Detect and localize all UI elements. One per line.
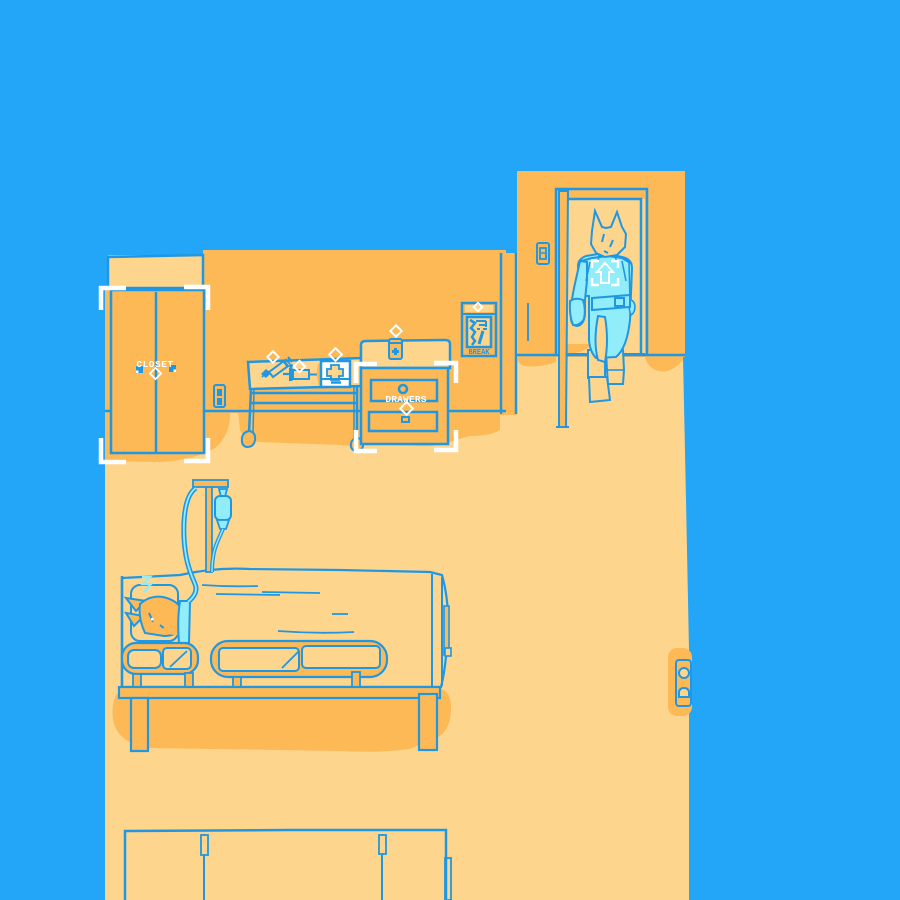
svg-text:BREAK: BREAK xyxy=(468,349,490,357)
